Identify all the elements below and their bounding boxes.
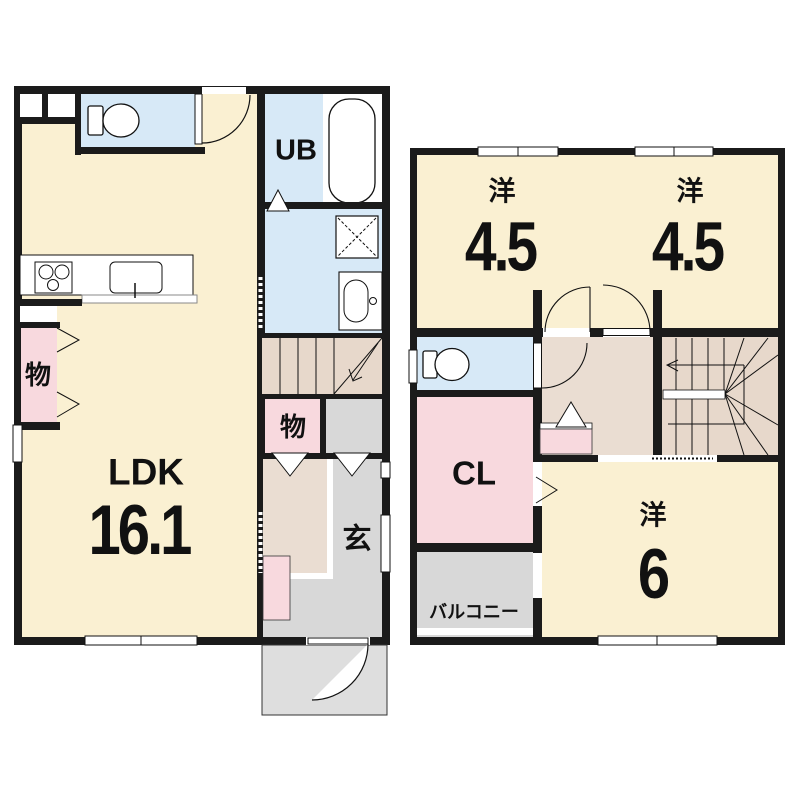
- door-opening: [533, 553, 542, 598]
- wall: [75, 94, 81, 155]
- wall: [320, 399, 326, 453]
- wall: [14, 117, 75, 124]
- west-room2-size: 4.5: [652, 213, 722, 283]
- entry-closet: [326, 399, 382, 453]
- door-opening: [533, 462, 542, 506]
- niche: [20, 306, 57, 322]
- balcony-label: バルコニー: [429, 603, 519, 621]
- toilet-door-leaf: [534, 343, 542, 388]
- entrance-label: 玄: [342, 526, 371, 555]
- wall: [20, 422, 60, 430]
- toilet-icon: [88, 104, 139, 137]
- toilet-door-leaf: [195, 94, 202, 144]
- wall: [75, 147, 205, 154]
- stair-landing: [663, 390, 725, 399]
- wall: [417, 543, 533, 552]
- west-room3-label: 洋: [640, 503, 667, 530]
- door-opening: [543, 328, 590, 337]
- floor-plan-drawing: [0, 0, 795, 795]
- balcony-room: [417, 552, 533, 637]
- entry-door-leaf: [308, 638, 368, 644]
- wall: [417, 390, 533, 397]
- closet-cell-1: [20, 94, 42, 117]
- hall-cabinet: [540, 429, 592, 454]
- shoe-cabinet: [263, 556, 290, 620]
- west-room2-label: 洋: [677, 179, 704, 206]
- bathtub-icon: [329, 99, 375, 203]
- west-room1-label: 洋: [489, 179, 516, 206]
- wall: [20, 322, 60, 328]
- balcony-railing: [417, 628, 533, 635]
- stove-icon: [35, 262, 72, 293]
- wall: [20, 299, 82, 306]
- closet-cell-2: [48, 94, 75, 117]
- wall: [533, 290, 542, 328]
- ldk-size: 16.1: [89, 496, 190, 567]
- closet-label: CL: [452, 457, 496, 490]
- wall: [42, 94, 48, 117]
- porch: [262, 645, 387, 715]
- floor-plan: UB 物 LDK 16.1 物 玄 洋 4.5 洋 4.5 CL 洋 6 バルコ…: [0, 0, 795, 795]
- west-room3-size: 6: [638, 540, 670, 611]
- storage-left-label: 物: [25, 362, 51, 388]
- toilet-icon: [423, 349, 469, 381]
- wall: [257, 394, 390, 399]
- kitchen-sink-icon: [110, 262, 162, 298]
- door-opening: [202, 87, 246, 94]
- wall: [257, 333, 390, 338]
- washbasin-icon: [339, 272, 382, 330]
- ub-label: UB: [275, 137, 317, 166]
- washer-pan-icon: [336, 216, 378, 258]
- wall: [417, 328, 778, 337]
- west-room1-size: 4.5: [465, 213, 535, 283]
- floor1-plan: [13, 86, 390, 715]
- ldk-label: LDK: [108, 454, 184, 491]
- wall: [653, 290, 662, 455]
- storage-hall-label: 物: [280, 414, 306, 440]
